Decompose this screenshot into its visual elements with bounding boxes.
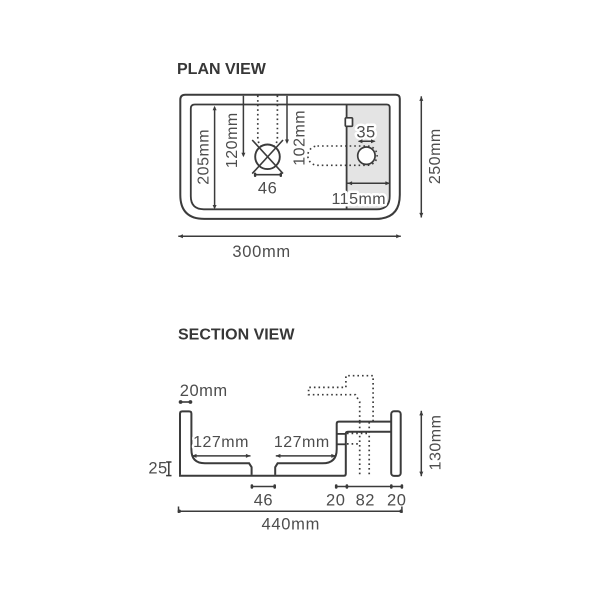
svg-text:115mm: 115mm xyxy=(331,191,386,208)
svg-text:127mm: 127mm xyxy=(193,434,249,451)
svg-text:46: 46 xyxy=(254,492,273,510)
svg-text:20: 20 xyxy=(326,491,345,509)
svg-text:20mm: 20mm xyxy=(180,382,228,400)
svg-text:130mm: 130mm xyxy=(428,415,445,471)
svg-text:PLAN VIEW: PLAN VIEW xyxy=(177,61,267,78)
svg-text:102mm: 102mm xyxy=(292,110,309,166)
svg-text:25: 25 xyxy=(148,460,167,478)
svg-text:120mm: 120mm xyxy=(224,112,241,168)
svg-text:46: 46 xyxy=(258,180,277,198)
svg-text:205mm: 205mm xyxy=(196,129,213,185)
svg-text:250mm: 250mm xyxy=(427,128,444,184)
svg-text:127mm: 127mm xyxy=(274,434,330,451)
svg-text:20: 20 xyxy=(387,491,406,509)
svg-text:35: 35 xyxy=(356,124,375,142)
svg-text:440mm: 440mm xyxy=(262,516,321,534)
svg-text:SECTION VIEW: SECTION VIEW xyxy=(178,327,295,344)
svg-text:300mm: 300mm xyxy=(232,243,291,261)
svg-text:82: 82 xyxy=(356,491,375,509)
